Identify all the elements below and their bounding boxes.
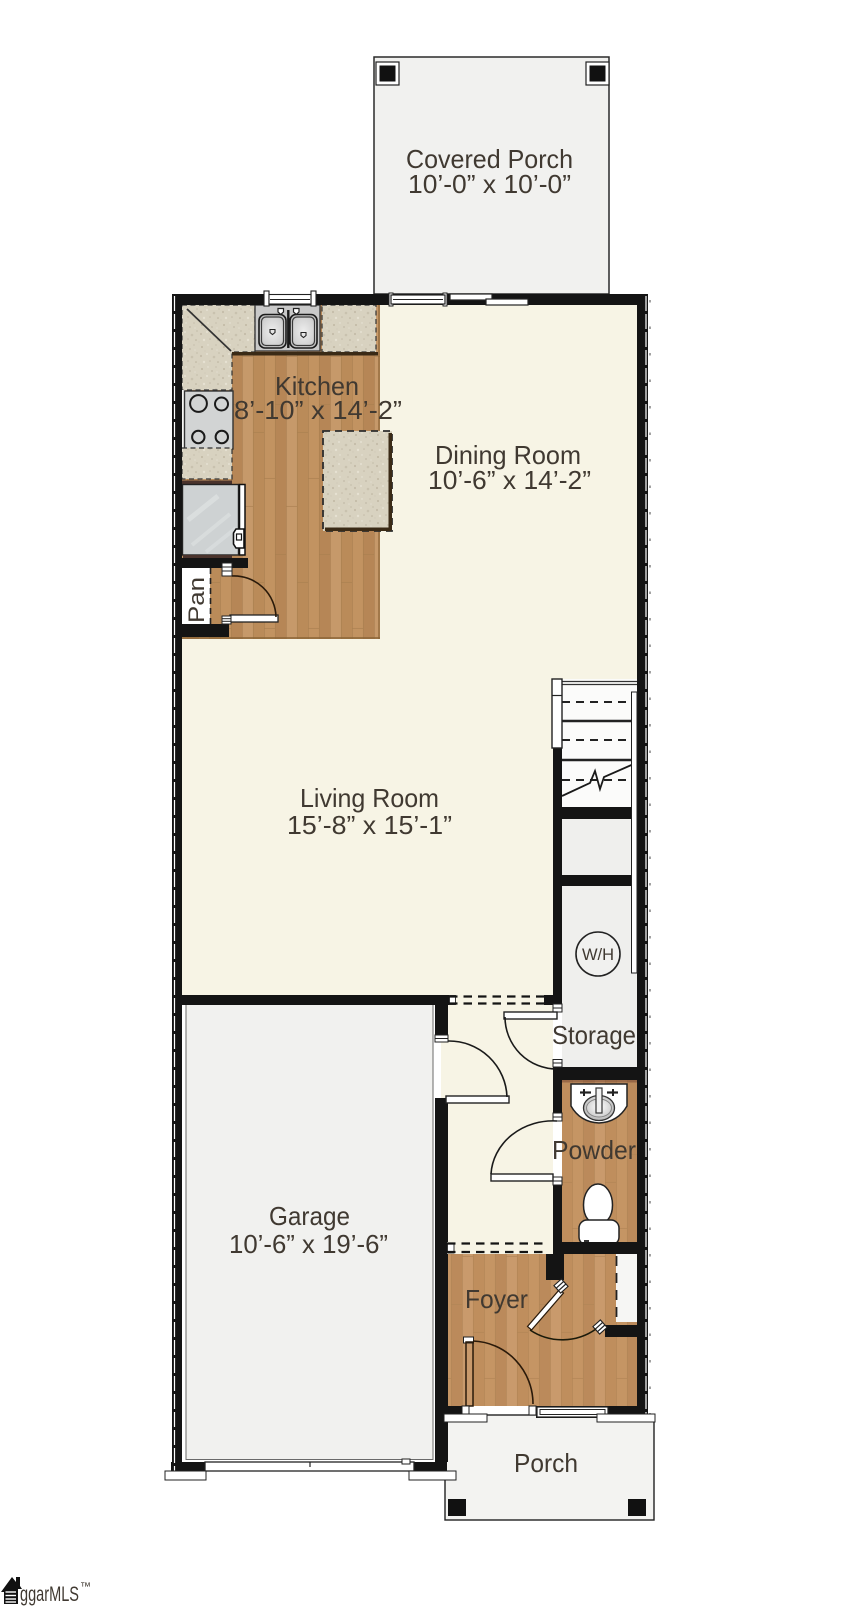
svg-text:10’-0” x 10’-0”: 10’-0” x 10’-0” <box>408 169 571 199</box>
svg-text:10’-6” x 19’-6”: 10’-6” x 19’-6” <box>229 1229 388 1259</box>
svg-text:8’-10” x 14’-2”: 8’-10” x 14’-2” <box>234 395 402 425</box>
svg-text:Storage: Storage <box>552 1020 636 1050</box>
svg-text:Porch: Porch <box>514 1448 578 1478</box>
svg-text:10’-6” x 14’-2”: 10’-6” x 14’-2” <box>428 465 591 495</box>
svg-text:Foyer: Foyer <box>465 1284 528 1314</box>
svg-text:15’-8” x 15’-1”: 15’-8” x 15’-1” <box>287 810 452 840</box>
svg-text:ggarMLS: ggarMLS <box>20 1583 79 1606</box>
svg-text:™: ™ <box>80 1581 91 1593</box>
svg-text:W/H: W/H <box>582 946 614 964</box>
svg-text:Living Room: Living Room <box>300 783 439 813</box>
svg-text:Pan: Pan <box>184 577 209 623</box>
svg-text:Powder: Powder <box>552 1135 636 1165</box>
svg-text:Garage: Garage <box>269 1201 350 1231</box>
